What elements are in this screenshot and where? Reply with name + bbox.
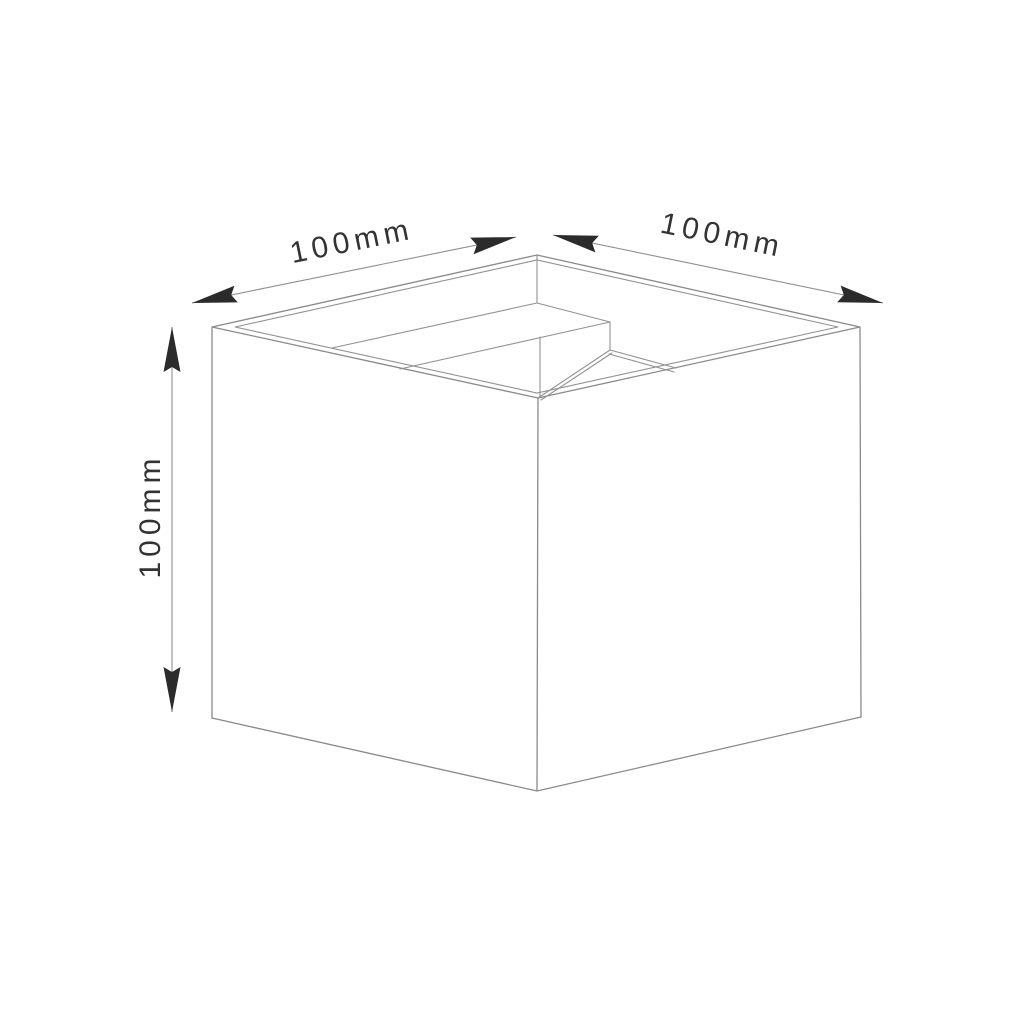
dimension-label: 100mm — [658, 207, 787, 264]
lower-plate-right-edge-inner — [609, 354, 674, 372]
cover-plate-back-edge — [537, 303, 610, 322]
lower-plate-left-edge — [538, 350, 610, 398]
cube-right-edge — [860, 327, 861, 717]
arrowhead-icon — [164, 667, 181, 712]
cube-top-recess-detail — [332, 255, 676, 400]
technical-drawing-page: 100mm 100mm 100mm — [0, 0, 1024, 1024]
arrowhead-icon — [164, 327, 181, 372]
cube-front-edge — [537, 398, 538, 791]
cube — [212, 255, 861, 791]
cube-top-outer-rim — [212, 255, 860, 398]
cover-plate-front-edge — [400, 322, 610, 369]
arrowhead-icon — [190, 286, 237, 312]
arrowhead-icon — [470, 229, 517, 255]
dimension-label: 100mm — [134, 453, 167, 578]
arrowhead-icon — [551, 227, 598, 253]
arrowhead-icon — [837, 286, 884, 312]
lower-plate-right-edge — [610, 350, 676, 368]
recess-opening-left-edge — [332, 303, 537, 348]
lower-plate-left-edge-inner — [541, 353, 612, 400]
cube-dimension-drawing: 100mm 100mm 100mm — [0, 0, 1024, 1024]
dimension-width-left: 100mm — [190, 213, 517, 312]
dimension-height: 100mm — [134, 327, 181, 712]
